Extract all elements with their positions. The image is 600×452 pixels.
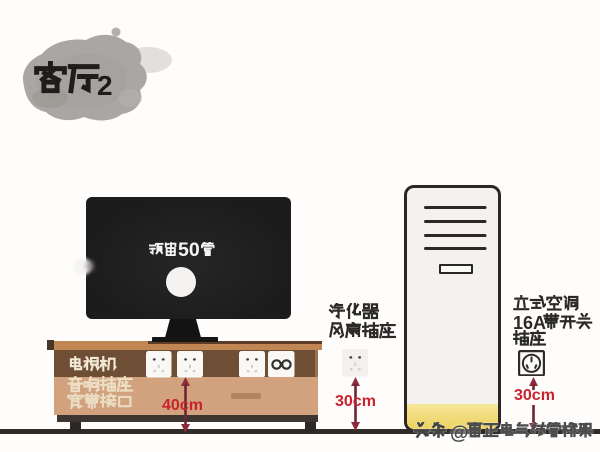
svg-text:50: 50 <box>178 239 200 261</box>
